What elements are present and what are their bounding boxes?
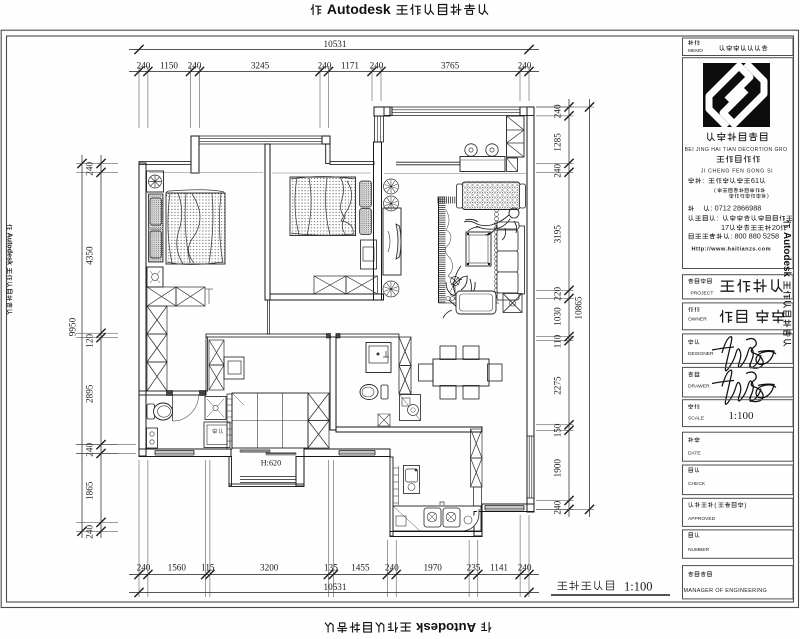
svg-text:10531: 10531 xyxy=(324,582,347,592)
svg-text:240: 240 xyxy=(385,563,399,573)
svg-text:4350: 4350 xyxy=(85,246,95,265)
svg-text:1:100: 1:100 xyxy=(729,410,755,422)
svg-text:3765: 3765 xyxy=(441,61,460,71)
svg-text:JI CHENG FEN GONG SI: JI CHENG FEN GONG SI xyxy=(701,169,774,175)
svg-text:240: 240 xyxy=(370,61,384,71)
svg-text:240: 240 xyxy=(137,563,151,573)
svg-text:1865: 1865 xyxy=(85,481,95,500)
svg-text:1900: 1900 xyxy=(553,459,563,478)
svg-text::: : xyxy=(702,176,706,185)
svg-text:1560: 1560 xyxy=(168,563,187,573)
svg-text:MEMO: MEMO xyxy=(688,48,703,54)
svg-text:H:620: H:620 xyxy=(261,459,281,468)
svg-text:CHECK: CHECK xyxy=(688,481,706,487)
svg-text:240: 240 xyxy=(518,563,532,573)
svg-text:DESIGNER: DESIGNER xyxy=(688,351,714,357)
svg-text:BEI JING HAI TIAN DECORTION GR: BEI JING HAI TIAN DECORTION GRO xyxy=(685,147,788,153)
svg-text:10531: 10531 xyxy=(324,39,347,49)
svg-text:): ) xyxy=(767,194,769,200)
svg-text:(: ( xyxy=(714,188,716,194)
svg-text:Http://www.haitianzs.com: Http://www.haitianzs.com xyxy=(692,247,772,253)
svg-text:DATE: DATE xyxy=(688,450,701,456)
svg-text:PROJECT: PROJECT xyxy=(691,291,714,297)
svg-text:2895: 2895 xyxy=(85,384,95,403)
svg-text:: 0712 2866988: : 0712 2866988 xyxy=(711,204,762,213)
svg-text:61: 61 xyxy=(751,176,759,185)
svg-text:OWNER: OWNER xyxy=(688,316,707,322)
svg-text:10865: 10865 xyxy=(574,296,584,319)
svg-text:235: 235 xyxy=(467,563,481,573)
svg-text:MANAGER OF ENGINEERING: MANAGER OF ENGINEERING xyxy=(684,588,768,594)
svg-text:APPROVED: APPROVED xyxy=(688,516,716,522)
svg-text:1:100: 1:100 xyxy=(624,580,652,594)
svg-text:240: 240 xyxy=(553,164,563,178)
svg-text:240: 240 xyxy=(518,61,532,71)
svg-text:): ) xyxy=(744,502,746,509)
svg-text:Autodesk: Autodesk xyxy=(324,1,395,17)
svg-text:1171: 1171 xyxy=(341,61,359,71)
svg-text:Autodesk: Autodesk xyxy=(5,231,13,267)
svg-text:240: 240 xyxy=(318,61,332,71)
svg-text:120: 120 xyxy=(85,334,95,348)
svg-text:2275: 2275 xyxy=(553,376,563,395)
svg-text:1141: 1141 xyxy=(490,563,508,573)
svg-text:115: 115 xyxy=(201,563,215,573)
svg-text::: : xyxy=(716,213,720,222)
svg-text:3200: 3200 xyxy=(260,563,279,573)
svg-text:Autodesk: Autodesk xyxy=(412,620,479,635)
svg-text:1970: 1970 xyxy=(424,563,443,573)
svg-text:1030: 1030 xyxy=(553,307,563,326)
svg-text:NUMBER: NUMBER xyxy=(688,547,710,553)
svg-text:1150: 1150 xyxy=(160,61,178,71)
svg-text:17: 17 xyxy=(721,223,729,232)
svg-text:SCALE: SCALE xyxy=(688,416,705,422)
svg-text:: 800 880 5258: : 800 880 5258 xyxy=(730,231,779,240)
svg-text:Autodesk: Autodesk xyxy=(781,230,792,280)
svg-text:3195: 3195 xyxy=(553,225,563,244)
svg-text:1455: 1455 xyxy=(351,563,370,573)
svg-text:135: 135 xyxy=(324,563,338,573)
svg-text:3245: 3245 xyxy=(251,61,270,71)
svg-text:DRAWER: DRAWER xyxy=(688,383,710,389)
svg-text:1285: 1285 xyxy=(553,133,563,152)
svg-text:240: 240 xyxy=(137,61,151,71)
svg-text:240: 240 xyxy=(553,500,563,514)
